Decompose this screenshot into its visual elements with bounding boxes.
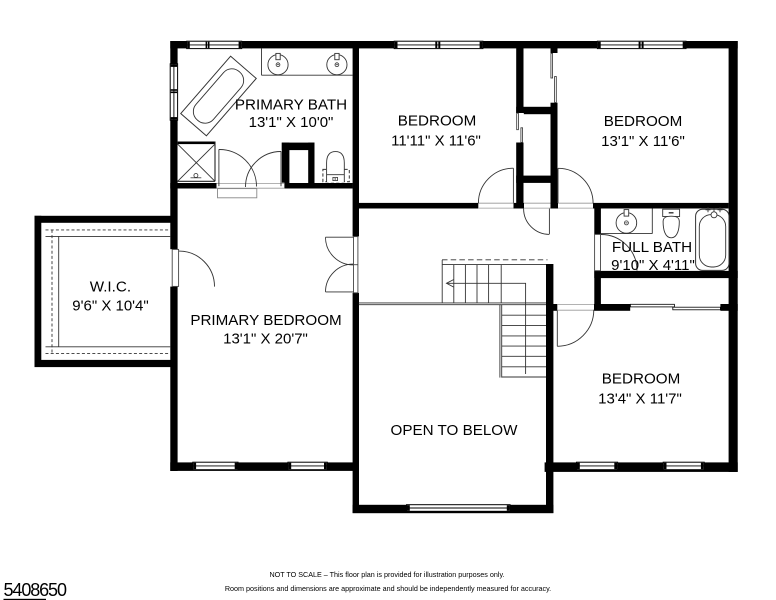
svg-text:BEDROOM: BEDROOM [398, 112, 476, 129]
svg-text:13'1" X 20'7": 13'1" X 20'7" [223, 331, 308, 348]
svg-text:BEDROOM: BEDROOM [604, 113, 682, 130]
svg-text:13'1" X 11'6": 13'1" X 11'6" [601, 133, 685, 150]
svg-text:9'6" X 10'4": 9'6" X 10'4" [72, 298, 148, 315]
svg-text:Room positions and dimensions: Room positions and dimensions are approx… [225, 584, 551, 593]
svg-text:5408650: 5408650 [4, 580, 67, 600]
svg-text:13'1" X 10'0": 13'1" X 10'0" [249, 114, 334, 131]
svg-text:11'11" X 11'6": 11'11" X 11'6" [391, 132, 481, 149]
svg-text:PRIMARY BATH: PRIMARY BATH [235, 96, 347, 113]
svg-text:FULL BATH: FULL BATH [612, 239, 692, 256]
svg-text:W.I.C.: W.I.C. [90, 278, 131, 295]
svg-text:OPEN TO BELOW: OPEN TO BELOW [391, 422, 519, 439]
svg-text:BEDROOM: BEDROOM [602, 370, 680, 387]
svg-text:PRIMARY BEDROOM: PRIMARY BEDROOM [190, 312, 341, 329]
svg-text:NOT TO SCALE – This floor plan: NOT TO SCALE – This floor plan is provid… [269, 570, 504, 579]
svg-text:13'4" X 11'7": 13'4" X 11'7" [598, 390, 682, 407]
svg-text:9'10" X 4'11": 9'10" X 4'11" [611, 257, 695, 274]
